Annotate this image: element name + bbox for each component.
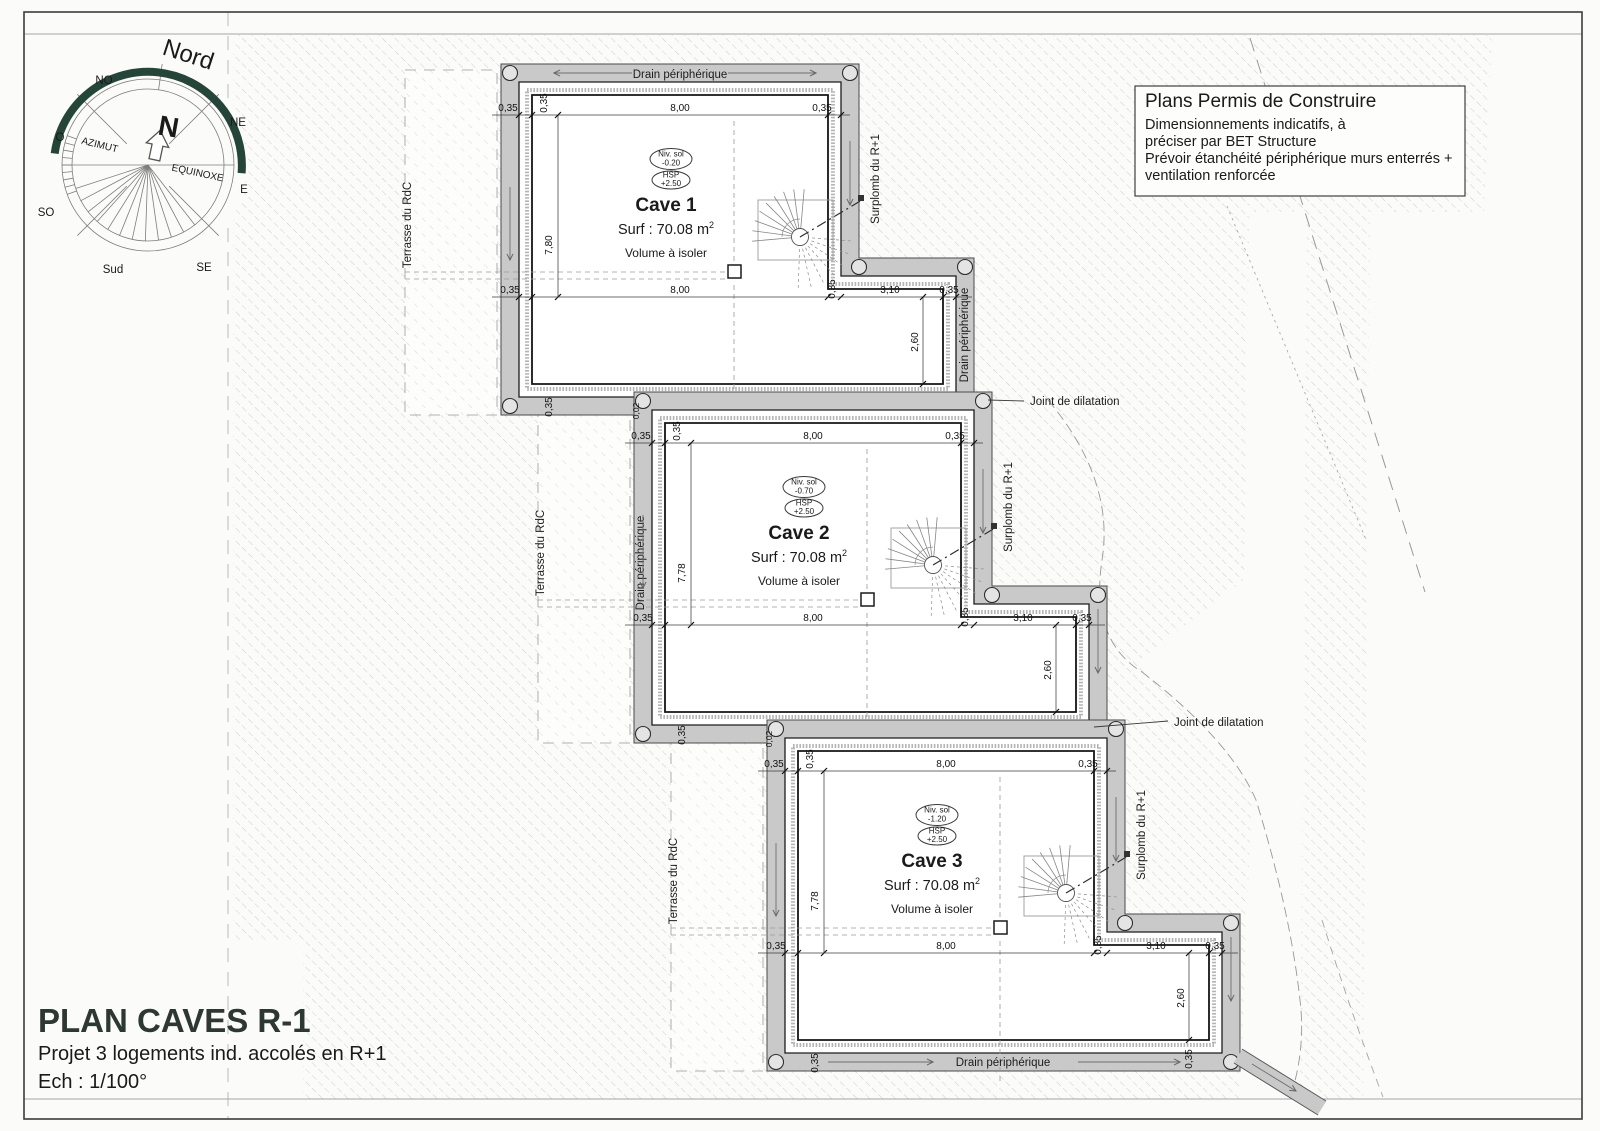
svg-text:0,35: 0,35 (498, 103, 518, 114)
cave-name: Cave 3 (901, 851, 962, 872)
drain-label-right: Drain périphérique (959, 288, 971, 383)
svg-text:0,35: 0,35 (631, 431, 651, 442)
svg-text:NO: NO (95, 75, 112, 87)
svg-text:Dimensionnements indicatifs, à: Dimensionnements indicatifs, à (1145, 117, 1347, 133)
svg-text:Niv. sol: Niv. sol (924, 806, 950, 815)
svg-text:2,60: 2,60 (910, 332, 921, 352)
svg-text:0,35: 0,35 (945, 431, 965, 442)
svg-text:0,35: 0,35 (766, 941, 786, 952)
svg-text:0,35: 0,35 (805, 749, 816, 769)
cave-surface: Surf : 70.08 m2 (884, 876, 980, 894)
cave-volume-note: Volume à isoler (758, 574, 840, 588)
svg-text:Drain périphérique: Drain périphérique (633, 69, 728, 81)
page-title: PLAN CAVES R-1 (38, 1002, 311, 1039)
svg-text:Niv. sol: Niv. sol (658, 150, 684, 159)
svg-text:0,35: 0,35 (1184, 1049, 1195, 1069)
svg-text:0,35: 0,35 (1093, 935, 1104, 955)
svg-text:2,60: 2,60 (1043, 660, 1054, 680)
terrasse-label: Terrasse du RdC (402, 182, 414, 268)
svg-text:3,10: 3,10 (1013, 613, 1033, 624)
svg-text:8,00: 8,00 (803, 613, 823, 624)
terrace-zone: Terrasse du RdC (402, 70, 497, 415)
svg-text:Prévoir étanchéité périphériqu: Prévoir étanchéité périphérique murs ent… (1145, 151, 1452, 167)
page-scale: Ech : 1/100° (38, 1071, 147, 1093)
svg-text:7,80: 7,80 (544, 235, 555, 255)
svg-text:+2.50: +2.50 (927, 835, 948, 844)
drawing-sheet: Terrasse du RdC (0, 0, 1600, 1131)
cave-name: Cave 1 (635, 195, 697, 216)
cave-volume-note: Volume à isoler (625, 246, 707, 260)
svg-text:Sud: Sud (103, 264, 123, 276)
drain-label-left: Drain périphérique (635, 516, 647, 611)
svg-text:ventilation renforcée: ventilation renforcée (1145, 168, 1276, 184)
svg-text:3,10: 3,10 (1146, 941, 1166, 952)
svg-text:2,60: 2,60 (1176, 988, 1187, 1008)
svg-text:E: E (240, 184, 248, 196)
svg-text:+2.50: +2.50 (794, 507, 815, 516)
svg-text:Surplomb du R+1: Surplomb du R+1 (1136, 790, 1148, 880)
post-marker (994, 921, 1007, 934)
svg-text:3,10: 3,10 (880, 285, 900, 296)
svg-text:-1.20: -1.20 (928, 815, 947, 824)
svg-text:8,00: 8,00 (803, 431, 823, 442)
svg-text:0,35: 0,35 (1078, 759, 1098, 770)
svg-text:préciser par BET Structure: préciser par BET Structure (1145, 134, 1316, 150)
cave-name: Cave 2 (768, 523, 829, 544)
svg-text:0,35: 0,35 (500, 285, 520, 296)
cave-surface: Surf : 70.08 m2 (618, 220, 714, 238)
svg-text:0,35: 0,35 (539, 93, 550, 113)
svg-text:SE: SE (196, 262, 212, 274)
svg-text:8,00: 8,00 (936, 759, 956, 770)
svg-text:0,35: 0,35 (633, 613, 653, 624)
svg-text:8,00: 8,00 (670, 285, 690, 296)
svg-text:0,35: 0,35 (810, 1053, 821, 1073)
svg-text:SO: SO (38, 207, 55, 219)
svg-text:0,35: 0,35 (960, 607, 971, 627)
svg-text:0,35: 0,35 (764, 759, 784, 770)
svg-text:+2.50: +2.50 (661, 179, 682, 188)
post-marker (861, 593, 874, 606)
terrace-zone: Terrasse du RdC (535, 398, 630, 743)
svg-text:Drain périphérique: Drain périphérique (956, 1057, 1051, 1069)
svg-text:Joint de dilatation: Joint de dilatation (1030, 396, 1120, 408)
post-marker (728, 265, 741, 278)
svg-text:NE: NE (230, 117, 246, 129)
svg-text:8,00: 8,00 (936, 941, 956, 952)
svg-text:Surplomb du R+1: Surplomb du R+1 (870, 134, 882, 224)
page-subtitle: Projet 3 logements ind. accolés en R+1 (38, 1043, 387, 1065)
svg-text:Joint de dilatation: Joint de dilatation (1174, 717, 1264, 729)
terrasse-label: Terrasse du RdC (535, 510, 547, 596)
cave-volume-note: Volume à isoler (891, 902, 973, 916)
notes-title: Plans Permis de Construire (1145, 91, 1376, 112)
svg-text:7,78: 7,78 (810, 891, 821, 911)
svg-text:0,35: 0,35 (812, 103, 832, 114)
svg-text:0,35: 0,35 (672, 421, 683, 441)
svg-text:-0.70: -0.70 (795, 487, 814, 496)
svg-text:Niv. sol: Niv. sol (791, 478, 817, 487)
terrasse-label: Terrasse du RdC (668, 838, 680, 924)
svg-text:0,02: 0,02 (764, 730, 774, 747)
svg-text:8,00: 8,00 (670, 103, 690, 114)
svg-text:7,78: 7,78 (677, 563, 688, 583)
svg-text:0,35: 0,35 (827, 279, 838, 299)
svg-text:O: O (56, 132, 65, 144)
svg-text:0,35: 0,35 (677, 725, 688, 745)
svg-text:0,35: 0,35 (1205, 941, 1225, 952)
cave-surface: Surf : 70.08 m2 (751, 548, 847, 566)
notes-box: Plans Permis de Construire Dimensionneme… (1135, 86, 1465, 196)
svg-text:0,02: 0,02 (631, 402, 641, 419)
terrace-zone: Terrasse du RdC (668, 726, 763, 1071)
svg-text:Surplomb du R+1: Surplomb du R+1 (1003, 462, 1015, 552)
svg-text:0,35: 0,35 (939, 285, 959, 296)
floor-plan-svg: Terrasse du RdC (0, 0, 1600, 1131)
svg-text:-0.20: -0.20 (662, 159, 681, 168)
svg-text:0,35: 0,35 (1072, 613, 1092, 624)
svg-text:0,35: 0,35 (544, 397, 555, 417)
